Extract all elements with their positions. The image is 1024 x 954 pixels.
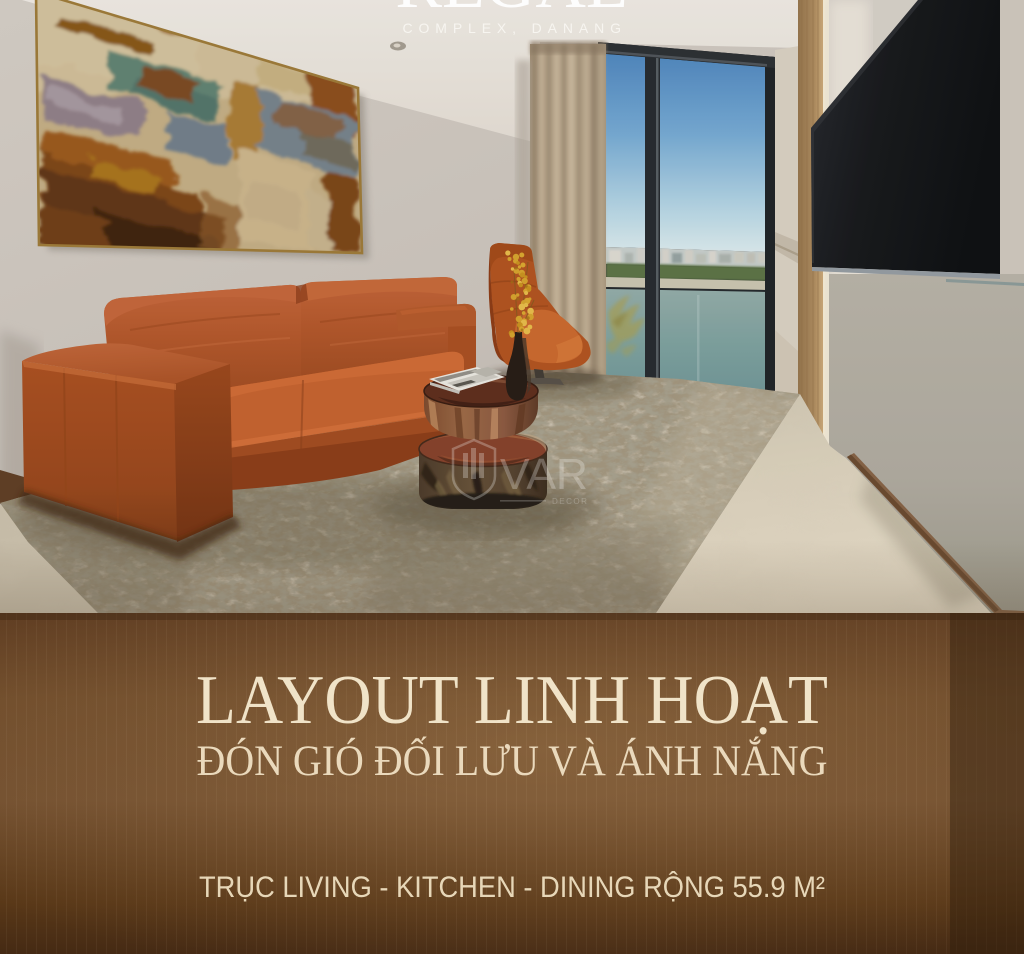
svg-text:TRỤC LIVING - KITCHEN - DINING: TRỤC LIVING - KITCHEN - DINING RỘNG 55.9…	[199, 870, 825, 904]
svg-text:ĐÓN GIÓ ĐỐI LƯU VÀ ÁNH NẮNG: ĐÓN GIÓ ĐỐI LƯU VÀ ÁNH NẮNG	[197, 737, 828, 785]
svg-text:LAYOUT LINH HOẠT: LAYOUT LINH HOẠT	[196, 662, 828, 739]
svg-text:COMPLEX, DANANG: COMPLEX, DANANG	[403, 20, 628, 36]
